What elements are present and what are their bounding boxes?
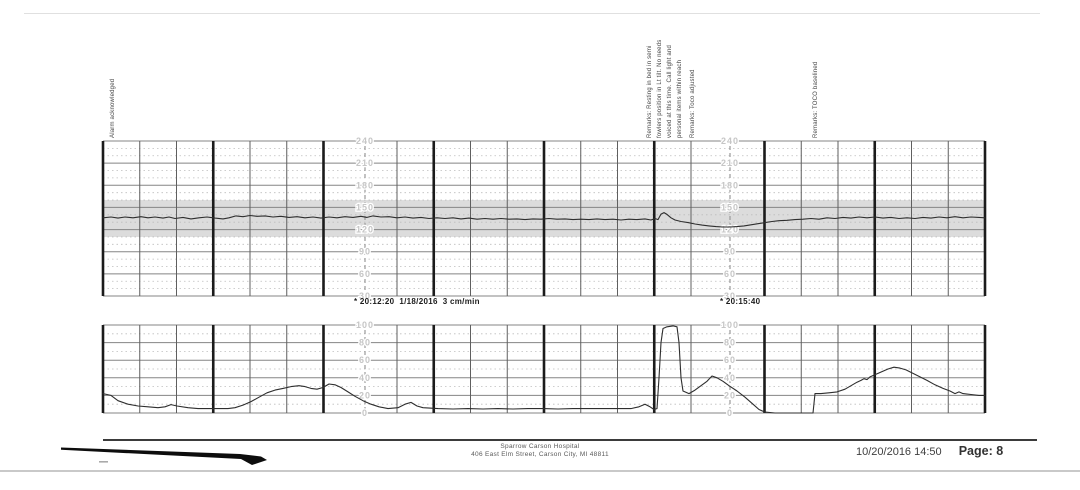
svg-text:90: 90 [359, 247, 371, 257]
svg-text:0: 0 [727, 408, 733, 418]
fhr-strip-chart: 2402101801501209060302402101801501209060… [103, 141, 985, 296]
svg-text:40: 40 [359, 373, 371, 383]
svg-text:100: 100 [356, 320, 374, 330]
svg-text:210: 210 [356, 158, 374, 168]
svg-text:90: 90 [724, 247, 736, 257]
annotation-remarks-line: Remarks: Resting in bed in semi [646, 45, 654, 138]
svg-text:80: 80 [359, 338, 371, 348]
svg-text:60: 60 [724, 269, 736, 279]
footer-print-info: 10/20/2016 14:50 Page: 8 [856, 444, 1003, 458]
page-bottom-edge-line [0, 470, 1080, 472]
svg-text:60: 60 [359, 355, 371, 365]
svg-text:40: 40 [724, 373, 736, 383]
footer-rule-line [103, 439, 1037, 441]
strip-timestamp-right: * 20:15:40 [720, 297, 760, 306]
svg-text:240: 240 [356, 136, 374, 146]
annotation-alarm-acknowledged: Alarm acknowledged [109, 79, 117, 138]
svg-text:150: 150 [356, 202, 374, 212]
svg-text:180: 180 [356, 180, 374, 190]
annotation-remarks-toco-baselined: Remarks: TOCO baselined [812, 62, 820, 138]
svg-text:210: 210 [721, 158, 739, 168]
svg-text:100: 100 [721, 320, 739, 330]
svg-text:60: 60 [724, 355, 736, 365]
svg-text:150: 150 [721, 202, 739, 212]
annotation-remarks-line: personal items within reach [676, 60, 684, 138]
strip-timestamp-left: * 20:12:20 1/18/2016 3 cm/min [354, 297, 480, 306]
svg-text:20: 20 [724, 390, 736, 400]
annotation-remarks-line: voiced at this time. Call light and [666, 45, 674, 138]
page-top-edge-line [24, 13, 1040, 14]
svg-text:240: 240 [721, 136, 739, 146]
svg-text:60: 60 [359, 269, 371, 279]
svg-text:120: 120 [721, 225, 739, 235]
svg-text:80: 80 [724, 338, 736, 348]
print-datetime: 10/20/2016 14:50 [856, 446, 942, 458]
scan-artifact-mark [55, 442, 285, 472]
annotation-remarks-toco-adjusted: Remarks: Toco adjusted [689, 69, 697, 138]
svg-text:0: 0 [362, 408, 368, 418]
annotation-remarks-line: fowlers position in Lt tilt. No needs [656, 40, 664, 138]
svg-text:180: 180 [721, 180, 739, 190]
toco-strip-chart: 100806040200100806040200 [103, 325, 985, 413]
scanned-strip-page: Alarm acknowledged Remarks: Resting in b… [0, 0, 1080, 490]
page-number-label: Page: 8 [959, 444, 1003, 458]
svg-text:120: 120 [356, 225, 374, 235]
